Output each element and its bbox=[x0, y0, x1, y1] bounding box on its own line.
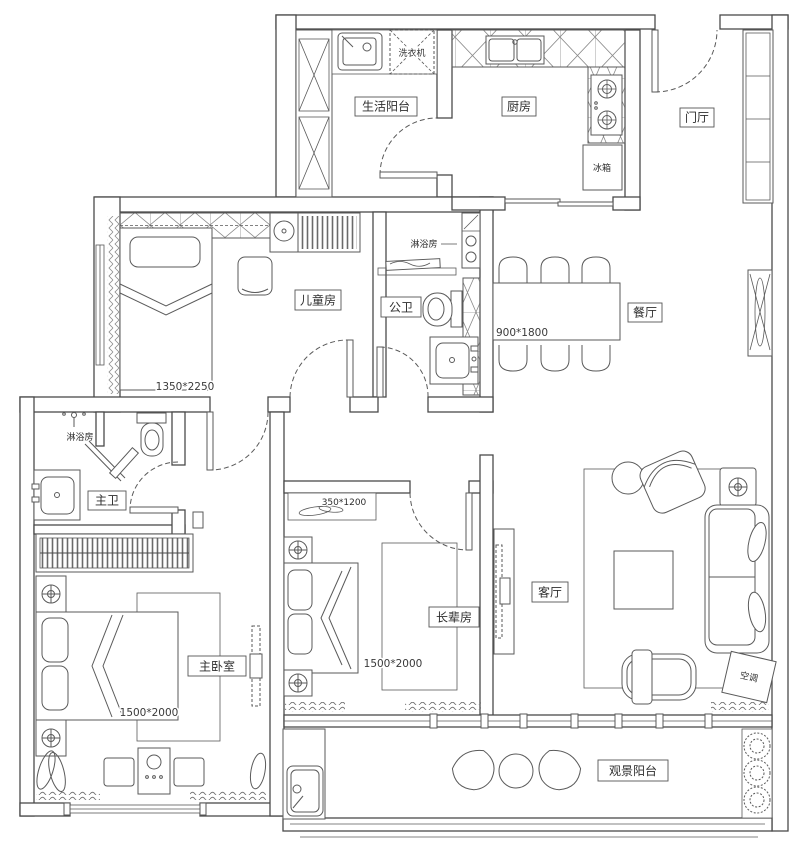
wall-children-top bbox=[95, 197, 493, 212]
dining-chair bbox=[499, 345, 527, 371]
elder-bed bbox=[284, 563, 358, 673]
master-bath-door bbox=[130, 462, 178, 513]
dining-chair bbox=[582, 345, 610, 371]
wall-central-3 bbox=[350, 397, 378, 412]
stove bbox=[591, 75, 622, 135]
tv-feature-wall bbox=[494, 529, 514, 654]
entry-hall-label: 门厅 bbox=[685, 110, 709, 125]
dining-table-dim: 900*1800 bbox=[496, 327, 548, 339]
floor-plan-drawing: 洗衣机 生活阳台 冰箱 厨房 bbox=[0, 0, 802, 842]
entrance-door bbox=[652, 30, 717, 92]
wall-shower-stub bbox=[96, 412, 104, 446]
closet-end-panel bbox=[193, 512, 203, 528]
elder-bed-dim: 1500*2000 bbox=[364, 658, 423, 670]
chaise-lounge bbox=[622, 650, 696, 704]
public-shower-label: 淋浴房 bbox=[410, 238, 437, 250]
master-bed-dim: 1500*2000 bbox=[120, 707, 179, 719]
wall-masterbath-bottom bbox=[34, 525, 185, 534]
children-bed-dim: 1350*2250 bbox=[156, 381, 215, 393]
public-bath-label: 公卫 bbox=[389, 301, 413, 315]
wall-masterbath-right-1 bbox=[172, 412, 185, 465]
master-washbasin bbox=[32, 470, 80, 520]
master-closet bbox=[36, 534, 193, 572]
wall-elder-living bbox=[480, 455, 493, 717]
armchair bbox=[637, 448, 708, 516]
kitchen-sink bbox=[486, 36, 544, 64]
children-label: 儿童房 bbox=[300, 293, 336, 308]
balcony-sink-cabinet bbox=[283, 729, 325, 819]
wall-balcony-left bbox=[276, 15, 296, 197]
round-side-table bbox=[612, 462, 644, 494]
children-bed bbox=[120, 228, 212, 390]
wall-balcony-kitchen-lower bbox=[437, 175, 452, 197]
master-bath-label: 主卫 bbox=[95, 494, 119, 508]
lamp-side-table bbox=[720, 468, 756, 506]
public-toilet bbox=[423, 291, 462, 327]
children-door bbox=[290, 340, 353, 397]
wall-master-right bbox=[270, 412, 284, 816]
room-children: 1350*2250 儿童房 bbox=[120, 213, 360, 393]
balcony-bottom-wall bbox=[283, 818, 772, 837]
washer-label: 洗衣机 bbox=[398, 47, 425, 59]
wall-right-outer bbox=[772, 15, 788, 831]
wall-insulation-hatch bbox=[107, 216, 119, 394]
wall-top-left bbox=[276, 15, 655, 29]
wall-balcony-kitchen-upper bbox=[437, 30, 452, 118]
room-elder: 350*1200 1500*2000 长辈房 bbox=[284, 493, 479, 696]
wall-kitchen-bottom-right bbox=[613, 197, 640, 210]
children-chair bbox=[238, 257, 272, 295]
dining-chair bbox=[582, 257, 610, 283]
wall-central-4 bbox=[428, 397, 493, 412]
room-view-balcony: 观景阳台 bbox=[283, 729, 772, 819]
balcony-kitchen-door bbox=[380, 118, 437, 178]
room-public-bath: 淋浴房 公卫 bbox=[378, 213, 480, 395]
air-conditioner: 空调 bbox=[722, 651, 776, 702]
kitchen-sliding-door bbox=[505, 199, 613, 206]
wall-kitchen-hall bbox=[625, 30, 640, 210]
shower-bench bbox=[378, 259, 456, 275]
wall-central-1 bbox=[20, 397, 210, 412]
wall-kitchen-bottom-left bbox=[452, 197, 505, 210]
wall-bath-dining bbox=[480, 197, 493, 412]
coffee-table bbox=[614, 551, 673, 609]
master-bedroom-label: 主卧室 bbox=[199, 659, 235, 674]
master-window bbox=[64, 803, 206, 815]
master-nightstand-top bbox=[36, 576, 66, 612]
storage-cabinet bbox=[296, 30, 332, 197]
wall-masterbath-right-2 bbox=[172, 510, 185, 534]
room-master-bedroom: 主卧室 1500*2000 bbox=[33, 512, 268, 800]
public-shower-fixture bbox=[462, 213, 480, 268]
sofa bbox=[705, 505, 770, 653]
master-dresser bbox=[104, 748, 204, 794]
children-shelf bbox=[298, 213, 360, 252]
dining-chair bbox=[541, 257, 569, 283]
master-shower-head bbox=[63, 413, 86, 428]
balcony-chair bbox=[531, 744, 586, 798]
floor-plan-page: 洗衣机 生活阳台 冰箱 厨房 bbox=[0, 0, 802, 842]
living-label: 客厅 bbox=[538, 585, 562, 600]
elder-shelf: 350*1200 bbox=[288, 493, 376, 520]
south-window-band bbox=[284, 714, 772, 728]
shoe-cabinet bbox=[743, 30, 773, 203]
wall-elder-top-1 bbox=[284, 481, 410, 493]
shower-glass-door bbox=[85, 441, 138, 481]
elder-nightstand-bottom bbox=[284, 670, 312, 696]
kitchen-label: 厨房 bbox=[507, 99, 531, 114]
balcony-chair bbox=[447, 744, 502, 798]
public-washbasin bbox=[430, 337, 478, 384]
elder-shelf-dim: 350*1200 bbox=[322, 498, 367, 508]
master-tv bbox=[250, 626, 262, 706]
room-dining: 900*1800 餐厅 bbox=[493, 257, 772, 371]
elder-door bbox=[410, 493, 472, 550]
curtains-south bbox=[285, 702, 769, 712]
elder-nightstand-top bbox=[284, 537, 312, 563]
master-suite-door bbox=[207, 412, 268, 470]
dining-label: 餐厅 bbox=[633, 305, 657, 320]
room-entry-hall: 门厅 bbox=[680, 30, 773, 203]
master-toilet bbox=[137, 413, 166, 456]
fridge-label: 冰箱 bbox=[593, 162, 611, 174]
laundry-sink bbox=[338, 33, 382, 70]
life-balcony-label: 生活阳台 bbox=[362, 99, 410, 114]
balcony-table bbox=[499, 754, 533, 788]
children-desk-corner bbox=[270, 213, 298, 252]
dining-chair bbox=[541, 345, 569, 371]
elder-label: 长辈房 bbox=[436, 610, 472, 625]
wall-central-2 bbox=[268, 397, 290, 412]
wall-decor-panel bbox=[748, 270, 772, 356]
dining-chair bbox=[499, 257, 527, 283]
master-bed bbox=[36, 612, 178, 720]
fridge: 冰箱 bbox=[583, 145, 622, 190]
view-balcony-label: 观景阳台 bbox=[609, 763, 657, 778]
room-kitchen: 冰箱 厨房 bbox=[452, 30, 625, 190]
wall-left-outer bbox=[20, 397, 34, 816]
balcony-plants bbox=[742, 729, 772, 818]
wall-bottom-left-1 bbox=[20, 803, 70, 816]
